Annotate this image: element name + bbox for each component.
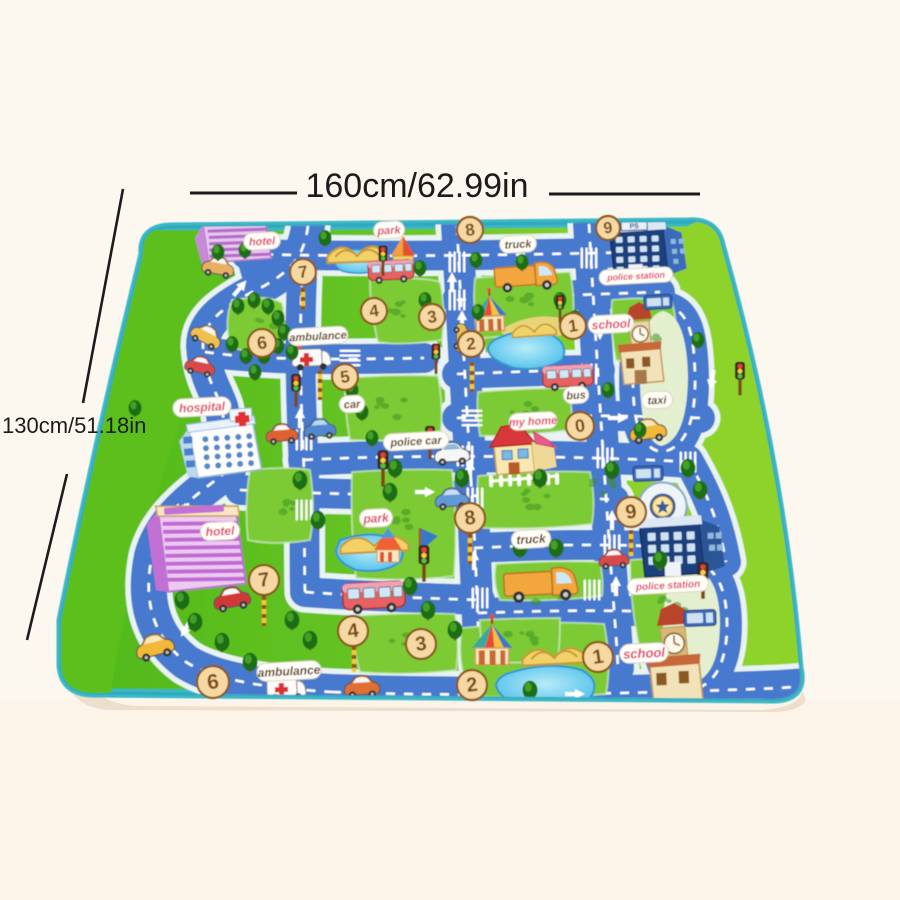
svg-text:school: school: [591, 316, 631, 332]
svg-text:car: car: [343, 399, 361, 412]
svg-text:PS: PS: [629, 223, 639, 230]
svg-text:park: park: [376, 224, 402, 237]
svg-text:hotel: hotel: [205, 524, 235, 540]
svg-text:truck: truck: [516, 531, 547, 547]
svg-text:taxi: taxi: [647, 394, 667, 407]
svg-text:school: school: [623, 645, 666, 662]
svg-text:hospital: hospital: [179, 399, 226, 415]
svg-text:park: park: [362, 511, 390, 526]
svg-text:160cm/62.99in: 160cm/62.99in: [305, 167, 528, 205]
svg-text:130cm/51.18in: 130cm/51.18in: [2, 413, 146, 438]
svg-text:hotel: hotel: [249, 235, 277, 248]
svg-text:bus: bus: [566, 389, 586, 402]
svg-text:truck: truck: [504, 238, 532, 251]
svg-text:my home: my home: [509, 415, 558, 430]
